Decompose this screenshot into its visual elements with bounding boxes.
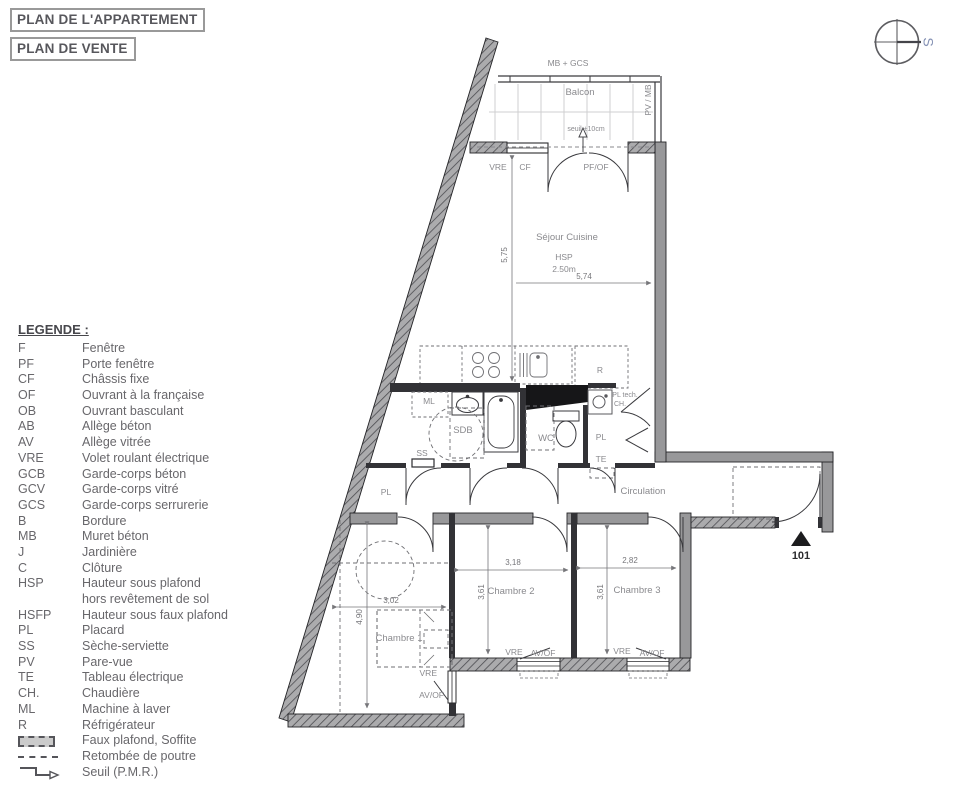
kitchen-sink <box>520 353 547 377</box>
label-fridge: R <box>597 365 603 375</box>
label-sdb: SDB <box>453 425 473 436</box>
washbasin <box>452 392 483 415</box>
label-pl-hall: PL <box>381 487 392 497</box>
label-avof-ch2: AV/OF <box>531 648 556 658</box>
label-hsp: HSP <box>555 252 573 262</box>
boiler <box>588 390 612 414</box>
dim-chambre2-width: 3,18 <box>505 558 521 567</box>
label-vre-ch2: VRE <box>505 647 523 657</box>
label-pv-mb: PV / MB <box>643 84 653 116</box>
label-avof-ch1: AV/OF <box>419 690 444 700</box>
entry-marker-triangle <box>791 531 811 546</box>
label-balcon: Balcon <box>565 87 594 98</box>
label-door-number: 101 <box>792 550 810 562</box>
label-chambre1: Chambre 1 <box>376 633 423 644</box>
label-ml: ML <box>423 396 435 406</box>
label-wc: WC <box>538 433 554 444</box>
label-ch: CH. <box>614 401 626 408</box>
compass-south-label: S <box>920 37 936 46</box>
cooktop <box>473 353 500 378</box>
label-pf-of: PF/OF <box>583 162 608 172</box>
floor-plan-page: { "titles": {"line1": "PLAN DE L'APPARTE… <box>0 0 958 800</box>
balcony-french-door <box>548 153 628 192</box>
label-vre-sejour: VRE <box>489 162 507 172</box>
dim-sejour-width: 5,74 <box>576 272 592 281</box>
dim-chambre1-height: 4,90 <box>355 609 364 625</box>
label-pl-tech: PL tech. <box>612 392 637 399</box>
label-chambre2: Chambre 2 <box>488 586 535 597</box>
label-sejour-cuisine: Séjour Cuisine <box>536 232 598 243</box>
label-circulation: Circulation <box>621 486 666 497</box>
label-avof-ch3: AV/OF <box>640 648 665 658</box>
dim-chambre3-width: 2,82 <box>622 556 638 565</box>
label-cf: CF <box>519 162 530 172</box>
dim-chambre1-width: 3,02 <box>383 596 399 605</box>
label-te: TE <box>596 454 607 464</box>
closet-bifold-doors <box>626 428 648 452</box>
dim-chambre3-height: 3,61 <box>596 584 605 600</box>
entry-door <box>772 474 822 546</box>
floor-plan-drawing: 5,74 5,75 3,02 4,90 3,18 3,61 2,82 3,61 … <box>0 0 958 800</box>
label-chambre3: Chambre 3 <box>614 585 661 596</box>
compass: S <box>874 19 936 65</box>
label-ss: SS <box>416 448 428 458</box>
label-vre-ch1: VRE <box>420 668 438 678</box>
label-vre-ch3: VRE <box>613 646 631 656</box>
interior-doors <box>398 468 683 552</box>
label-mb-gcs: MB + GCS <box>548 58 589 68</box>
label-pl-right: PL <box>596 432 607 442</box>
label-hsp-value: 2.50m <box>552 264 576 274</box>
label-seuil: seuil ±10cm <box>567 126 604 133</box>
towel-warmer <box>412 459 434 467</box>
dim-sejour-height: 5,75 <box>500 247 509 263</box>
toilet <box>553 411 579 447</box>
dim-chambre2-height: 3,61 <box>477 584 486 600</box>
bathtub <box>484 392 518 452</box>
